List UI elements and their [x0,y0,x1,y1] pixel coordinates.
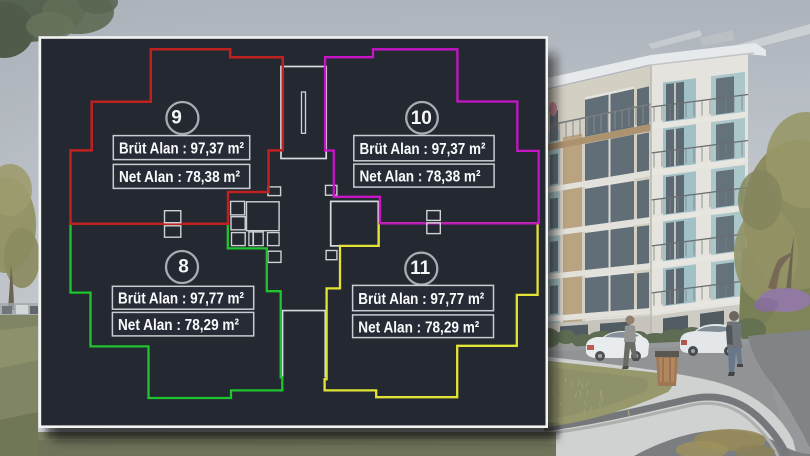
svg-text:Net Alan : 78,29 m²: Net Alan : 78,29 m² [358,319,479,336]
svg-text:Net Alan : 78,29 m²: Net Alan : 78,29 m² [118,317,239,334]
svg-text:Net Alan : 78,38 m²: Net Alan : 78,38 m² [360,169,481,186]
svg-text:Brüt Alan : 97,37 m²: Brüt Alan : 97,37 m² [360,141,486,158]
svg-text:Net Alan : 78,38 m²: Net Alan : 78,38 m² [119,169,240,186]
svg-text:Brüt Alan : 97,77 m²: Brüt Alan : 97,77 m² [118,291,244,308]
svg-text:9: 9 [171,107,182,128]
svg-text:8: 8 [178,257,189,278]
svg-text:Brüt Alan : 97,77 m²: Brüt Alan : 97,77 m² [358,291,484,308]
svg-text:Brüt Alan : 97,37 m²: Brüt Alan : 97,37 m² [119,140,244,157]
svg-text:10: 10 [411,108,432,129]
svg-text:11: 11 [410,258,431,279]
